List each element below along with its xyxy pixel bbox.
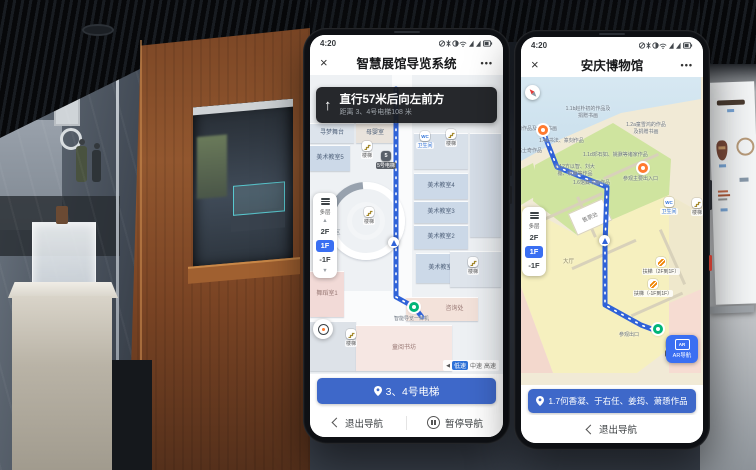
current-position-puck xyxy=(599,235,610,246)
more-icon[interactable]: ••• xyxy=(481,58,493,68)
stairs-poi: 楼梯 xyxy=(354,207,384,225)
speaker-icon[interactable]: ◀ xyxy=(446,363,450,369)
ceiling-light xyxy=(82,24,114,36)
destination-marker xyxy=(653,324,663,334)
page-title: 智慧展馆导览系统 xyxy=(310,53,503,72)
stairs-poi: 楼梯 xyxy=(458,257,488,275)
stairs-icon xyxy=(446,129,456,139)
destination-bar[interactable]: 3、4号电梯 xyxy=(317,378,496,404)
dark-floor xyxy=(112,360,152,470)
poster-text xyxy=(718,190,728,192)
phone-speaker xyxy=(394,31,420,33)
close-icon[interactable]: × xyxy=(320,55,328,70)
status-time: 4:20 xyxy=(320,39,336,48)
ar-navigation-button[interactable]: AR AR导航 xyxy=(666,335,698,363)
multi-floor-label[interactable]: 多层 xyxy=(319,208,330,216)
phone-2: 4:20 × 安庆博物馆 ••• xyxy=(514,30,710,450)
power-button[interactable] xyxy=(509,186,512,204)
current-position-puck xyxy=(388,237,399,248)
navigation-instruction-banner: ↑ 直行57米后向左前方 距离 3、4号电梯108 米 xyxy=(316,87,497,123)
exhibit-label: 1.6馆藏书画作品 xyxy=(573,179,610,186)
pause-nav-button[interactable]: 暂停导航 xyxy=(407,416,503,430)
pedestal xyxy=(12,296,112,470)
floor-up-icon[interactable]: ▲ xyxy=(322,218,327,224)
speed-option-low[interactable]: 低速 xyxy=(452,361,468,370)
floor-2f[interactable]: 2F xyxy=(316,226,334,238)
scene: 4:20 × 智慧展馆导览系统 ••• xyxy=(0,0,756,470)
stairs-icon xyxy=(364,207,374,217)
status-time: 4:20 xyxy=(531,41,547,50)
floor-b1f[interactable]: -1F xyxy=(525,260,543,272)
artifact xyxy=(56,206,68,224)
destination-text: 1.7何香凝、于右任、姜筠、萧愻作品 xyxy=(548,395,687,407)
poster-label xyxy=(721,208,728,211)
layers-icon[interactable] xyxy=(530,211,539,220)
instruction-text: 直行57米后向左前方 xyxy=(340,93,445,107)
poster-label xyxy=(739,178,748,182)
stairs-icon xyxy=(692,198,702,208)
voice-speed-selector: ◀ 低速 中速 高速 xyxy=(443,360,499,371)
back-chevron-icon xyxy=(332,418,342,428)
ar-icon: AR xyxy=(675,339,690,350)
display-case-glass xyxy=(233,181,285,216)
stairs-icon xyxy=(362,141,372,151)
speed-option-mid[interactable]: 中速 xyxy=(470,361,482,370)
bottom-actions: 退出导航 暂停导航 xyxy=(310,408,503,437)
volume-button[interactable] xyxy=(509,148,512,176)
indoor-map[interactable]: 售票处 1.1b赵朴初的作品及捐赠书画 的作品及捐赠书画 1.2a童雪鸿的作品及… xyxy=(521,77,703,385)
phone-2-screen: 4:20 × 安庆博物馆 ••• xyxy=(521,37,703,443)
museum-photo-left xyxy=(0,0,310,470)
poster-text xyxy=(718,194,730,196)
hall-label: 大厅 xyxy=(563,257,574,265)
locate-button[interactable] xyxy=(313,319,333,339)
exhibit-label: 1.1b赵朴初的作品及捐赠书画 xyxy=(565,105,611,119)
floor-selector: 多层 2F 1F -1F xyxy=(522,207,546,276)
vase-image xyxy=(716,140,728,160)
exhibit-label: 1.12方以智、刘大櫆、姚鼐等作品 xyxy=(555,163,595,177)
escalator-icon xyxy=(656,257,666,267)
stairs-icon xyxy=(468,257,478,267)
status-bar: 4:20 xyxy=(521,37,703,52)
stairs-poi: 楼梯 xyxy=(336,329,366,347)
page-title: 安庆博物馆 xyxy=(521,55,703,74)
vase-band xyxy=(718,146,725,149)
exit-label: 参观出口 xyxy=(619,331,639,338)
poster-label xyxy=(727,109,734,112)
floor-1f[interactable]: 1F xyxy=(525,246,543,258)
location-pin-icon xyxy=(374,386,382,396)
power-button[interactable] xyxy=(709,255,712,271)
start-marker xyxy=(409,302,419,312)
exhibit-poster xyxy=(708,81,756,304)
floor-2f[interactable]: 2F xyxy=(525,232,543,244)
toilet-icon: WC xyxy=(420,131,430,141)
start-marker xyxy=(538,125,548,135)
phone-1: 4:20 × 智慧展馆导览系统 ••• xyxy=(303,28,510,444)
elevator-icon: 5 xyxy=(381,151,391,161)
nav-header: × 安庆博物馆 ••• xyxy=(521,52,703,77)
plate-image xyxy=(736,137,755,156)
status-bar: 4:20 xyxy=(310,35,503,50)
wood-window-opening xyxy=(193,99,293,271)
bottom-actions: 退出导航 xyxy=(521,415,703,443)
exhibit-label: 1.2a童雪鸿的作品及捐赠书画 xyxy=(624,121,668,135)
status-icons xyxy=(439,39,493,48)
escalator-icon xyxy=(648,279,658,289)
exhibit-label: 1.1d邓石如、姚鼐等诸家作品 xyxy=(583,151,648,158)
nav-header: × 智慧展馆导览系统 ••• xyxy=(310,50,503,75)
elevator-poi: 5 5号电梯 xyxy=(371,151,401,169)
destination-bar[interactable]: 1.7何香凝、于右任、姜筠、萧愻作品 xyxy=(528,389,696,413)
layers-icon[interactable] xyxy=(321,197,330,206)
entrance-label: 参观主要出入口 xyxy=(623,175,658,182)
status-icons xyxy=(639,41,693,50)
location-pin-icon xyxy=(536,396,544,406)
more-icon[interactable]: ••• xyxy=(681,60,693,70)
compass-icon[interactable] xyxy=(525,85,540,100)
toilet-poi: WC 卫生间 xyxy=(654,197,684,215)
distance-text: 距离 3、4号电梯108 米 xyxy=(340,107,445,117)
straight-arrow-icon: ↑ xyxy=(324,97,332,114)
artifact-image xyxy=(717,100,745,106)
floor-selector: 多层 ▲ 2F 1F -1F ▼ xyxy=(313,193,337,278)
poster-label xyxy=(719,164,726,167)
floor-down-icon[interactable]: ▼ xyxy=(322,268,327,274)
start-marker-label: 智能导览一体机 xyxy=(394,315,429,322)
toilet-icon: WC xyxy=(664,197,674,207)
entrance-marker xyxy=(638,163,648,173)
escalator-poi: 扶梯（-1F到1F） xyxy=(638,279,668,297)
stairs-poi: 楼梯 xyxy=(682,198,703,216)
floor-1f[interactable]: 1F xyxy=(316,240,334,252)
back-chevron-icon xyxy=(586,424,596,434)
pause-icon xyxy=(427,416,440,429)
close-icon[interactable]: × xyxy=(531,57,539,72)
phone-1-screen: 4:20 × 智慧展馆导览系统 ••• xyxy=(310,35,503,437)
poster-text xyxy=(718,198,727,200)
poster-ledge xyxy=(710,305,754,314)
stairs-icon xyxy=(346,329,356,339)
floor-b1f[interactable]: -1F xyxy=(316,254,334,266)
exit-nav-button[interactable]: 退出导航 xyxy=(310,416,406,430)
exhibit-label: 1.4b书法、篆刻作品 xyxy=(539,137,584,144)
speed-option-high[interactable]: 高速 xyxy=(484,361,496,370)
exhibit-label: 高士奇作品 xyxy=(521,147,542,154)
window-outdoor-view xyxy=(197,134,227,199)
phone-speaker xyxy=(599,33,625,35)
escalator-poi: 扶梯（2F到1F） xyxy=(646,257,676,275)
destination-text: 3、4号电梯 xyxy=(386,384,440,399)
stairs-poi: 楼梯 xyxy=(436,129,466,147)
volume-button[interactable] xyxy=(709,180,712,210)
exit-nav-button[interactable]: 退出导航 xyxy=(521,422,703,436)
multi-floor-label[interactable]: 多层 xyxy=(528,222,539,230)
